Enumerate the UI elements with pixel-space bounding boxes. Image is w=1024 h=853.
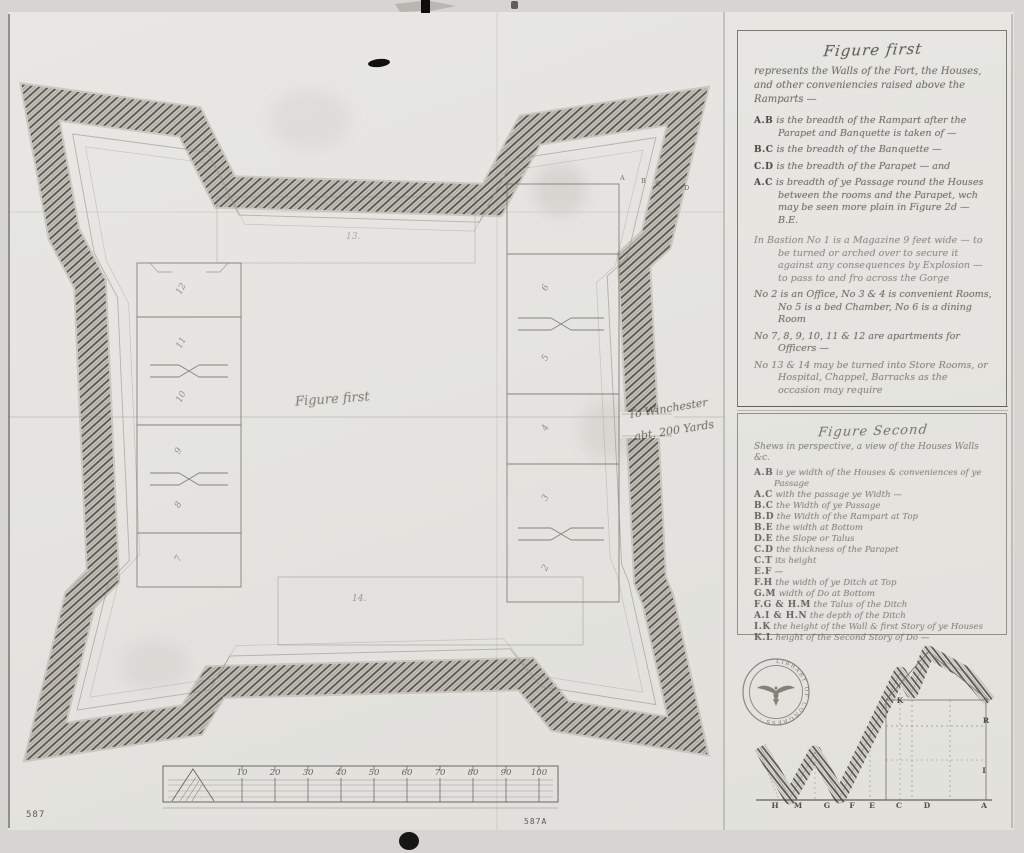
scale-tick: 30 bbox=[303, 768, 314, 778]
figure-second-intro: Shews in perspective, a view of the Hous… bbox=[754, 442, 992, 464]
profile-letter: D bbox=[924, 801, 931, 810]
page-number-left: 587 bbox=[26, 810, 45, 820]
profile-letter: E bbox=[869, 801, 875, 810]
scale-tick: 100 bbox=[531, 768, 547, 778]
profile-letter: M bbox=[794, 801, 802, 810]
photostat-marks bbox=[368, 0, 518, 850]
scale-tick: 70 bbox=[435, 768, 446, 778]
svg-text:LIBRARY OF CONGRESS ·: LIBRARY OF CONGRESS · bbox=[757, 659, 809, 725]
figure-second-item: B.E the width at Bottom bbox=[754, 523, 992, 534]
profile-letter: A bbox=[981, 801, 987, 810]
figure-first-title: Figure first bbox=[753, 38, 994, 62]
scale-tick: 50 bbox=[369, 768, 380, 778]
figure-first-item: A.B is the breadth of the Rampart after … bbox=[754, 115, 992, 140]
profile-letter: I bbox=[982, 766, 986, 775]
library-stamp: LIBRARY OF CONGRESS · bbox=[743, 659, 809, 725]
scale-tick: 90 bbox=[501, 768, 512, 778]
figure-first-item: No 7, 8, 9, 10, 11 & 12 are apartments f… bbox=[754, 331, 992, 356]
figure-first-item: No 13 & 14 may be turned into Store Room… bbox=[754, 360, 992, 398]
figure-first-item: C.D is the breadth of the Parapet — and bbox=[754, 161, 992, 174]
figure-second-item: K.L height of the Second Story of Do — bbox=[754, 633, 992, 644]
scale-tick: 60 bbox=[402, 768, 413, 778]
figure-second-item: I.K the height of the Wall & first Story… bbox=[754, 622, 992, 633]
rampart-letter-d: D bbox=[684, 184, 689, 192]
figure-second-item: E.F — bbox=[754, 567, 992, 578]
profile-letter: R bbox=[983, 716, 989, 725]
door-detail bbox=[518, 318, 604, 540]
figure-first-item: No 2 is an Office, No 3 & 4 is convenien… bbox=[754, 289, 992, 327]
scale-tick: 40 bbox=[336, 768, 347, 778]
figure-first-item: A.C is breadth of ye Passage round the H… bbox=[754, 177, 992, 227]
building-14-outline bbox=[278, 577, 583, 645]
figure-first-panel: Figure first represents the Walls of the… bbox=[737, 30, 1007, 407]
ink-blot bbox=[368, 58, 391, 68]
figure-second-item: A.B is ye width of the Houses & convenie… bbox=[754, 468, 992, 490]
profile-letter: H bbox=[771, 801, 778, 810]
scale-numbers: 10 20 30 40 50 60 70 80 90 100 bbox=[0, 768, 1024, 780]
building-13-label: 13. bbox=[346, 232, 360, 242]
rampart-letter-c: C bbox=[656, 180, 661, 188]
figure-second-item: F.G & H.M the Talus of the Ditch bbox=[754, 600, 992, 611]
profile-letter: K bbox=[897, 696, 904, 705]
barracks-left-range bbox=[137, 263, 241, 587]
eagle-icon bbox=[757, 686, 795, 706]
page-number-center: 587A bbox=[524, 817, 547, 826]
figure-first-item: In Bastion No 1 is a Magazine 9 feet wid… bbox=[754, 235, 992, 285]
profile-letter: C bbox=[896, 801, 902, 810]
panel-divider-rule bbox=[737, 406, 1008, 411]
profile-letter: F bbox=[849, 801, 854, 810]
figure-first-item: B.C is the breadth of the Banquette — bbox=[754, 144, 992, 157]
figure-second-item: G.M width of Do at Bottom bbox=[754, 589, 992, 600]
figure-second-item: B.D the Width of the Rampart at Top bbox=[754, 512, 992, 523]
figure-second-item: F.H the width of ye Ditch at Top bbox=[754, 578, 992, 589]
figure-second-panel: Figure Second Shews in perspective, a vi… bbox=[737, 413, 1007, 635]
rampart-letter-a: A bbox=[620, 174, 625, 182]
figure-second-item: A.I & H.N the depth of the Ditch bbox=[754, 611, 992, 622]
figure-second-item: C.T its height bbox=[754, 556, 992, 567]
building-14-label: 14. bbox=[352, 594, 366, 604]
figure-second-item: A.C with the passage ye Width — bbox=[754, 490, 992, 501]
figure-second-item: D.E the Slope or Talus bbox=[754, 534, 992, 545]
rampart-letter-b: B bbox=[641, 177, 646, 185]
scale-tick: 80 bbox=[468, 768, 479, 778]
profile-letter: G bbox=[824, 801, 830, 810]
scanned-document: LIBRARY OF CONGRESS · bbox=[0, 0, 1024, 853]
scale-tick: 20 bbox=[270, 768, 281, 778]
figure-first-intro: represents the Walls of the Fort, the Ho… bbox=[754, 65, 992, 107]
scale-tick: 10 bbox=[237, 768, 248, 778]
stamp-text: LIBRARY OF CONGRESS · bbox=[757, 659, 809, 725]
figure-second-item: C.D the thickness of the Parapet bbox=[754, 545, 992, 556]
figure-second-title: Figure Second bbox=[753, 421, 994, 442]
figure-second-item: B.C the Width of ye Passage bbox=[754, 501, 992, 512]
